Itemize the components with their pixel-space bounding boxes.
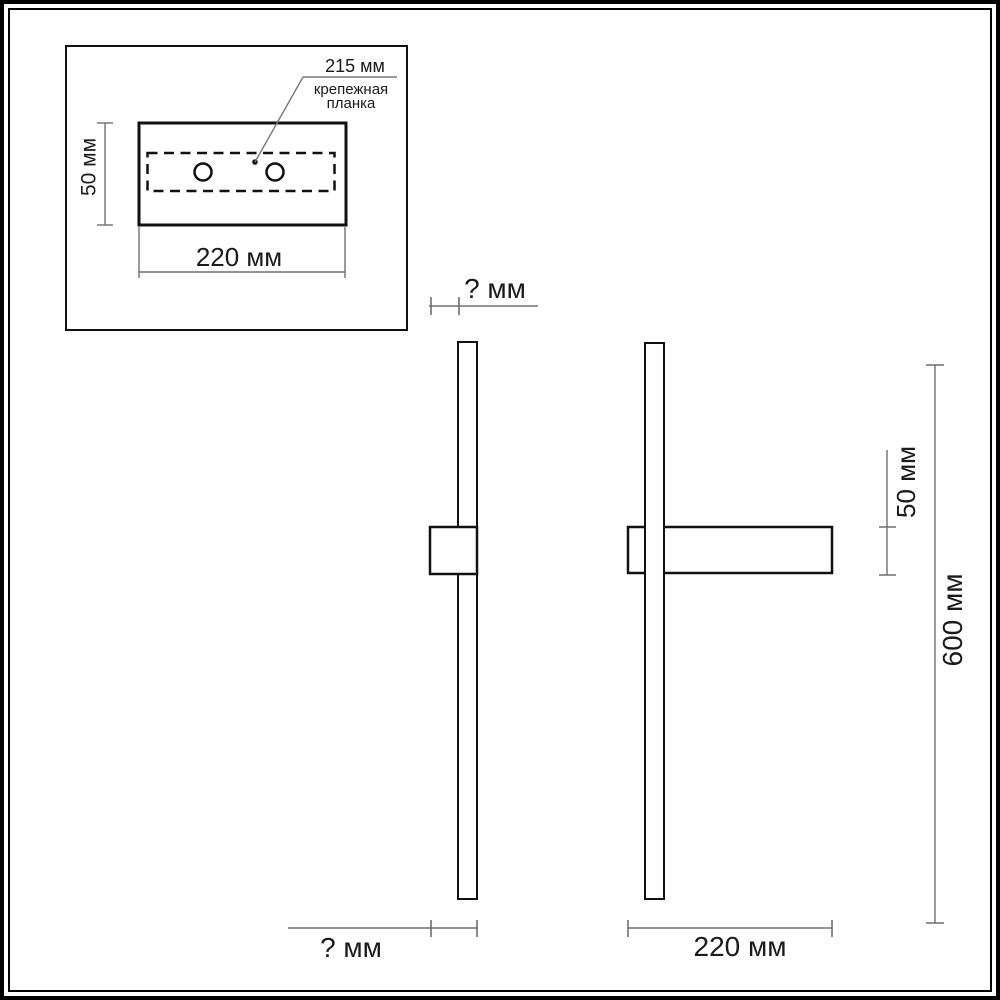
- side-depth-bottom-label: ? мм: [320, 934, 382, 962]
- lamp-side-view: [430, 342, 477, 899]
- mount-block-side: [430, 527, 477, 574]
- drawing-linework: [0, 0, 1000, 1000]
- inset-height-label: 50 мм: [79, 138, 100, 196]
- front-plate-height-label: 50 мм: [893, 446, 919, 518]
- inset-width-label: 220 мм: [196, 244, 282, 270]
- screw-hole-left: [195, 164, 212, 181]
- lamp-body-rect: [139, 123, 346, 225]
- inset-leader-dimension-label: 215 мм: [325, 57, 385, 75]
- side-depth-top-label: ? мм: [464, 275, 526, 303]
- side-depth-bottom-dimension: [288, 920, 478, 937]
- lamp-bar-side: [458, 342, 477, 899]
- screw-hole-right: [267, 164, 284, 181]
- front-total-height-label: 600 мм: [939, 574, 967, 667]
- mount-plate-note: крепежная планка: [314, 83, 388, 111]
- front-plate-width-label: 220 мм: [694, 933, 787, 961]
- lamp-bar-front: [645, 343, 664, 899]
- lamp-front-view: [628, 343, 832, 899]
- technical-drawing-page: 215 мм крепежная планка 50 мм 220 мм ? м…: [0, 0, 1000, 1000]
- mount-plate-note-line2: планка: [314, 97, 388, 111]
